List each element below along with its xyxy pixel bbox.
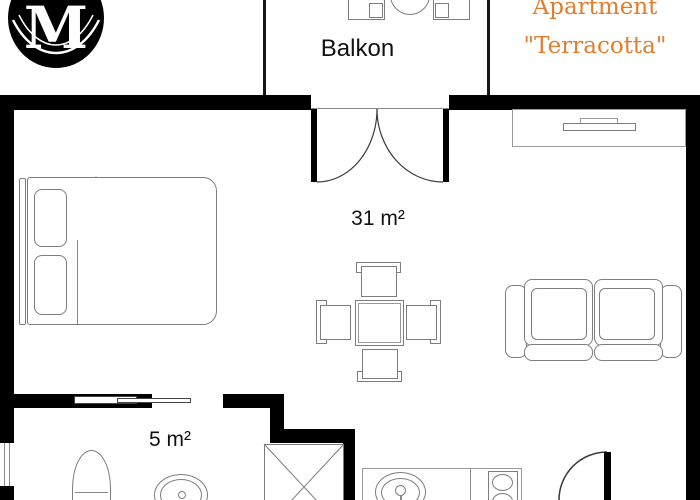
balcony-door-left-swing-arc xyxy=(317,109,377,182)
bed-sheet-line xyxy=(77,240,78,324)
tv-screen xyxy=(563,123,636,131)
dining-chair-right-seat xyxy=(406,305,437,340)
dining-chair-left-seat xyxy=(320,305,351,340)
main-room-area-label: 31 m² xyxy=(339,207,417,231)
entrance-door-leaf xyxy=(604,452,611,500)
apartment-floor-plan: M W Apartment "Terracotta" xyxy=(0,0,700,500)
dining-chair-top-seat xyxy=(361,266,397,297)
washbasin-drain xyxy=(178,491,186,499)
toilet-seat-line xyxy=(75,492,108,493)
bed-pillow-top xyxy=(34,189,67,247)
bed-pillow-bottom xyxy=(34,255,67,315)
balcony-label: Balkon xyxy=(300,35,415,63)
sofa-front-cushion-right xyxy=(594,344,663,361)
balcony-chair-right-armrest xyxy=(435,3,449,18)
bathroom-area-label: 5 m² xyxy=(132,428,208,452)
bed-headboard xyxy=(19,178,26,325)
kitchen-counter-divider xyxy=(470,468,471,500)
sofa-seat-left xyxy=(531,288,587,340)
balcony-door-right-swing-arc xyxy=(377,109,443,182)
dining-table-inner-edge xyxy=(358,303,401,343)
kitchen-faucet-stem xyxy=(400,495,402,500)
cooktop-burner-top xyxy=(492,474,513,491)
balcony-chair-left-armrest xyxy=(369,3,383,18)
entrance-door-swing-arc xyxy=(559,452,607,500)
dining-chair-bottom-seat xyxy=(362,349,398,379)
sliding-door-panel-inner xyxy=(117,398,191,403)
sofa-armrest-right xyxy=(660,285,682,358)
sofa-seat-right xyxy=(599,288,655,340)
shower xyxy=(264,444,344,500)
sofa-front-cushion-left xyxy=(524,344,593,361)
